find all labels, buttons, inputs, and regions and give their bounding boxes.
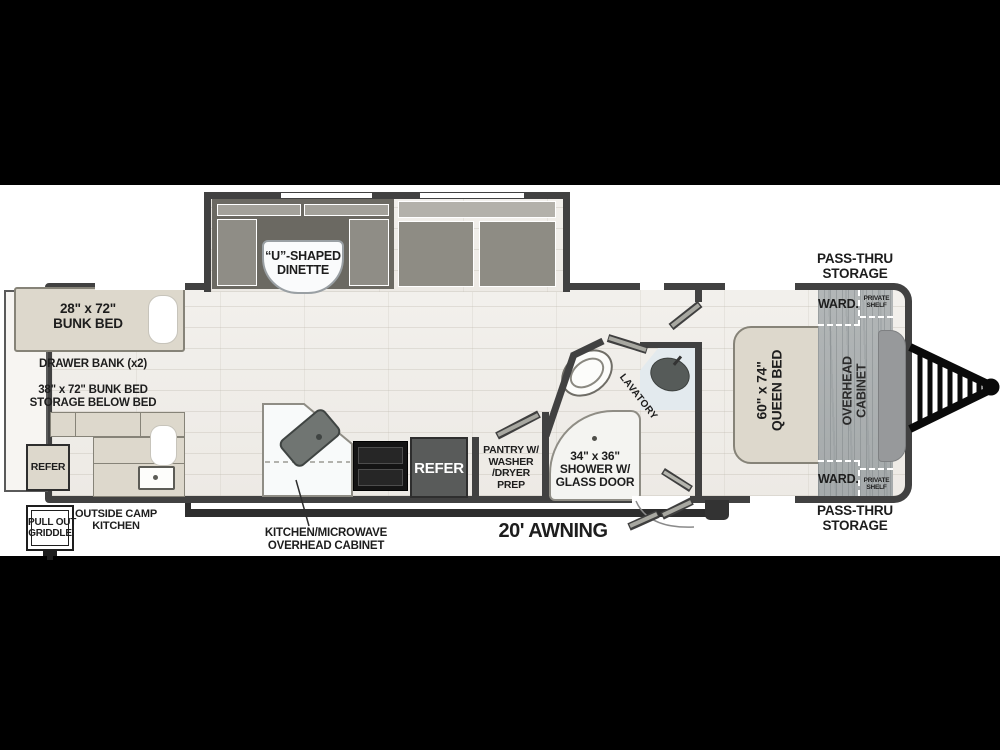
bath-wall-segment xyxy=(572,341,603,356)
pantry-door xyxy=(498,415,538,435)
entry-door xyxy=(663,502,691,515)
kitchen-faucet xyxy=(316,434,322,440)
bedroom-door xyxy=(672,305,699,326)
overlay-lines xyxy=(0,0,1000,750)
hitch-coupler xyxy=(983,379,999,395)
floorplan-image: 28" x 72"BUNK BED DRAWER BANK (x2) 38" x… xyxy=(0,0,1000,750)
bath-diagonal-wall xyxy=(546,354,574,436)
hitch xyxy=(910,347,999,429)
shower-glass-door xyxy=(664,472,690,488)
